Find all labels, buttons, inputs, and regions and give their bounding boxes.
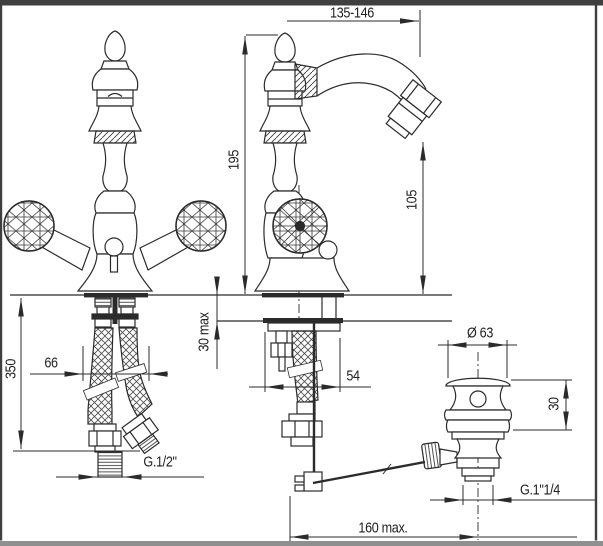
- dim-spout-reach: 135-146: [330, 5, 374, 22]
- dim-total-height: 195: [226, 150, 243, 170]
- front-view: [4, 31, 452, 477]
- dim-supply-thread: G.1/2": [143, 454, 176, 471]
- dim-waste-thread: G.1"1/4: [520, 482, 560, 499]
- dim-body-depth: 54: [346, 368, 359, 385]
- dim-waste-flange-height: 30: [546, 397, 563, 410]
- dim-spout-outlet-height: 105: [404, 190, 421, 210]
- dim-rod-reach: 160 max.: [358, 520, 407, 537]
- faucet-technical-drawing: [0, 0, 603, 546]
- side-view: [217, 33, 452, 491]
- dim-max-deck-thickness: 30 max: [196, 312, 213, 351]
- dim-hose-spacing: 66: [44, 355, 57, 372]
- drain-assembly: [421, 352, 511, 540]
- dim-waste-flange-diameter: Ø 63: [467, 325, 493, 342]
- drawing-canvas: 135-146 195 105 350 66 30 max 54 Ø 63 30…: [0, 0, 603, 546]
- dim-supply-hose-length: 350: [3, 359, 20, 379]
